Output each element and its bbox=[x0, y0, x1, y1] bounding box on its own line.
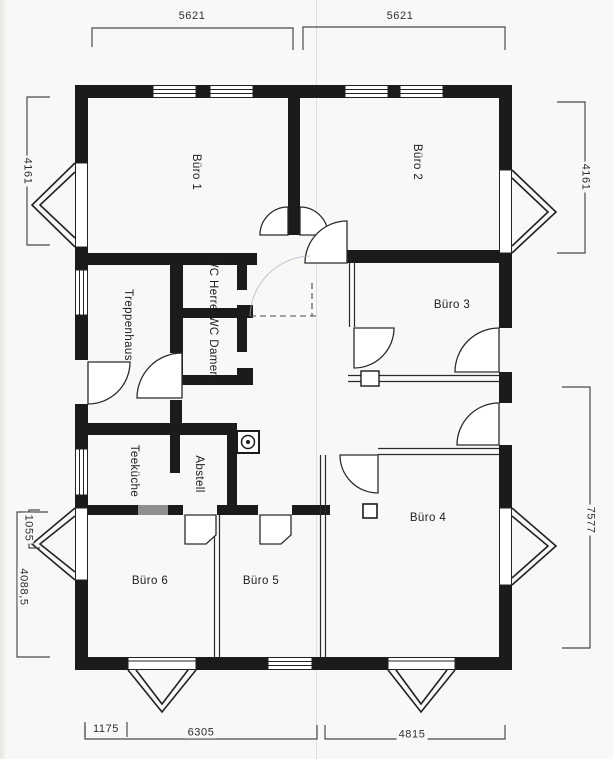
dim-label-left-upper: 4161 bbox=[22, 156, 33, 187]
dim-label-right-lower: 7577 bbox=[585, 505, 596, 536]
door-leaf-buero6 bbox=[185, 515, 216, 544]
room-label-teekueche: Teeküche bbox=[128, 445, 140, 497]
dim-label-left-lower: 4088,5 bbox=[18, 566, 29, 607]
door-leaf-buero5 bbox=[260, 515, 291, 544]
door-buero1 bbox=[260, 207, 288, 235]
dim-label-top-right: 5621 bbox=[387, 10, 414, 22]
dim-line-top-right bbox=[303, 27, 505, 50]
room-label-buero6: Büro 6 bbox=[132, 575, 168, 587]
room-label-wc-damen: WC Damen bbox=[207, 316, 219, 379]
ventilation-icon bbox=[237, 431, 259, 453]
dim-label-bottom-right: 4815 bbox=[397, 730, 428, 741]
floor-plan-drawing bbox=[0, 0, 613, 759]
dim-label-top-left: 5621 bbox=[179, 10, 206, 22]
dim-label-bottom-offset: 1175 bbox=[93, 723, 119, 735]
floor-plan: Büro 1 Büro 2 Büro 3 Büro 4 Büro 5 Büro … bbox=[0, 0, 613, 759]
bay-window-right-lower bbox=[500, 508, 557, 585]
bay-window-bottom-right bbox=[388, 658, 455, 713]
window-top-3 bbox=[345, 86, 388, 98]
door-right-upper bbox=[455, 328, 499, 372]
dim-label-bottom-left: 6305 bbox=[186, 728, 217, 739]
window-top-2 bbox=[210, 86, 253, 98]
room-label-abstell: Abstell bbox=[193, 455, 205, 492]
room-label-buero3: Büro 3 bbox=[434, 299, 470, 311]
dim-label-left-bay: 1055 bbox=[23, 513, 34, 544]
door-entrance bbox=[88, 362, 130, 404]
fixtures bbox=[237, 371, 379, 518]
dashed-opening bbox=[250, 256, 316, 316]
window-left-1 bbox=[76, 270, 88, 315]
room-label-wc-herren: WC Herren bbox=[207, 256, 219, 317]
partition-box-icon bbox=[361, 371, 379, 386]
bay-window-right-upper bbox=[500, 170, 557, 253]
room-label-buero1: Büro 1 bbox=[190, 154, 202, 190]
dim-line-top-left bbox=[92, 28, 293, 50]
window-top-4 bbox=[400, 86, 443, 98]
window-top-1 bbox=[153, 86, 196, 98]
door-buero4 bbox=[340, 455, 378, 493]
dim-label-right-upper: 4161 bbox=[580, 162, 591, 193]
room-label-buero2: Büro 2 bbox=[411, 144, 423, 180]
column-icon-buero4 bbox=[363, 504, 377, 518]
room-label-buero5: Büro 5 bbox=[243, 575, 279, 587]
door-right-lower bbox=[457, 403, 499, 445]
bay-window-left-lower bbox=[32, 508, 88, 580]
bay-window-bottom-left bbox=[128, 658, 196, 713]
room-label-treppenhaus: Treppenhaus bbox=[122, 289, 134, 361]
door-buero3 bbox=[354, 328, 394, 368]
bay-window-left-upper bbox=[32, 163, 88, 247]
window-left-2 bbox=[76, 449, 88, 495]
door-treppenhaus bbox=[137, 353, 182, 398]
room-label-buero4: Büro 4 bbox=[410, 512, 446, 524]
window-bottom-middle bbox=[268, 658, 312, 670]
